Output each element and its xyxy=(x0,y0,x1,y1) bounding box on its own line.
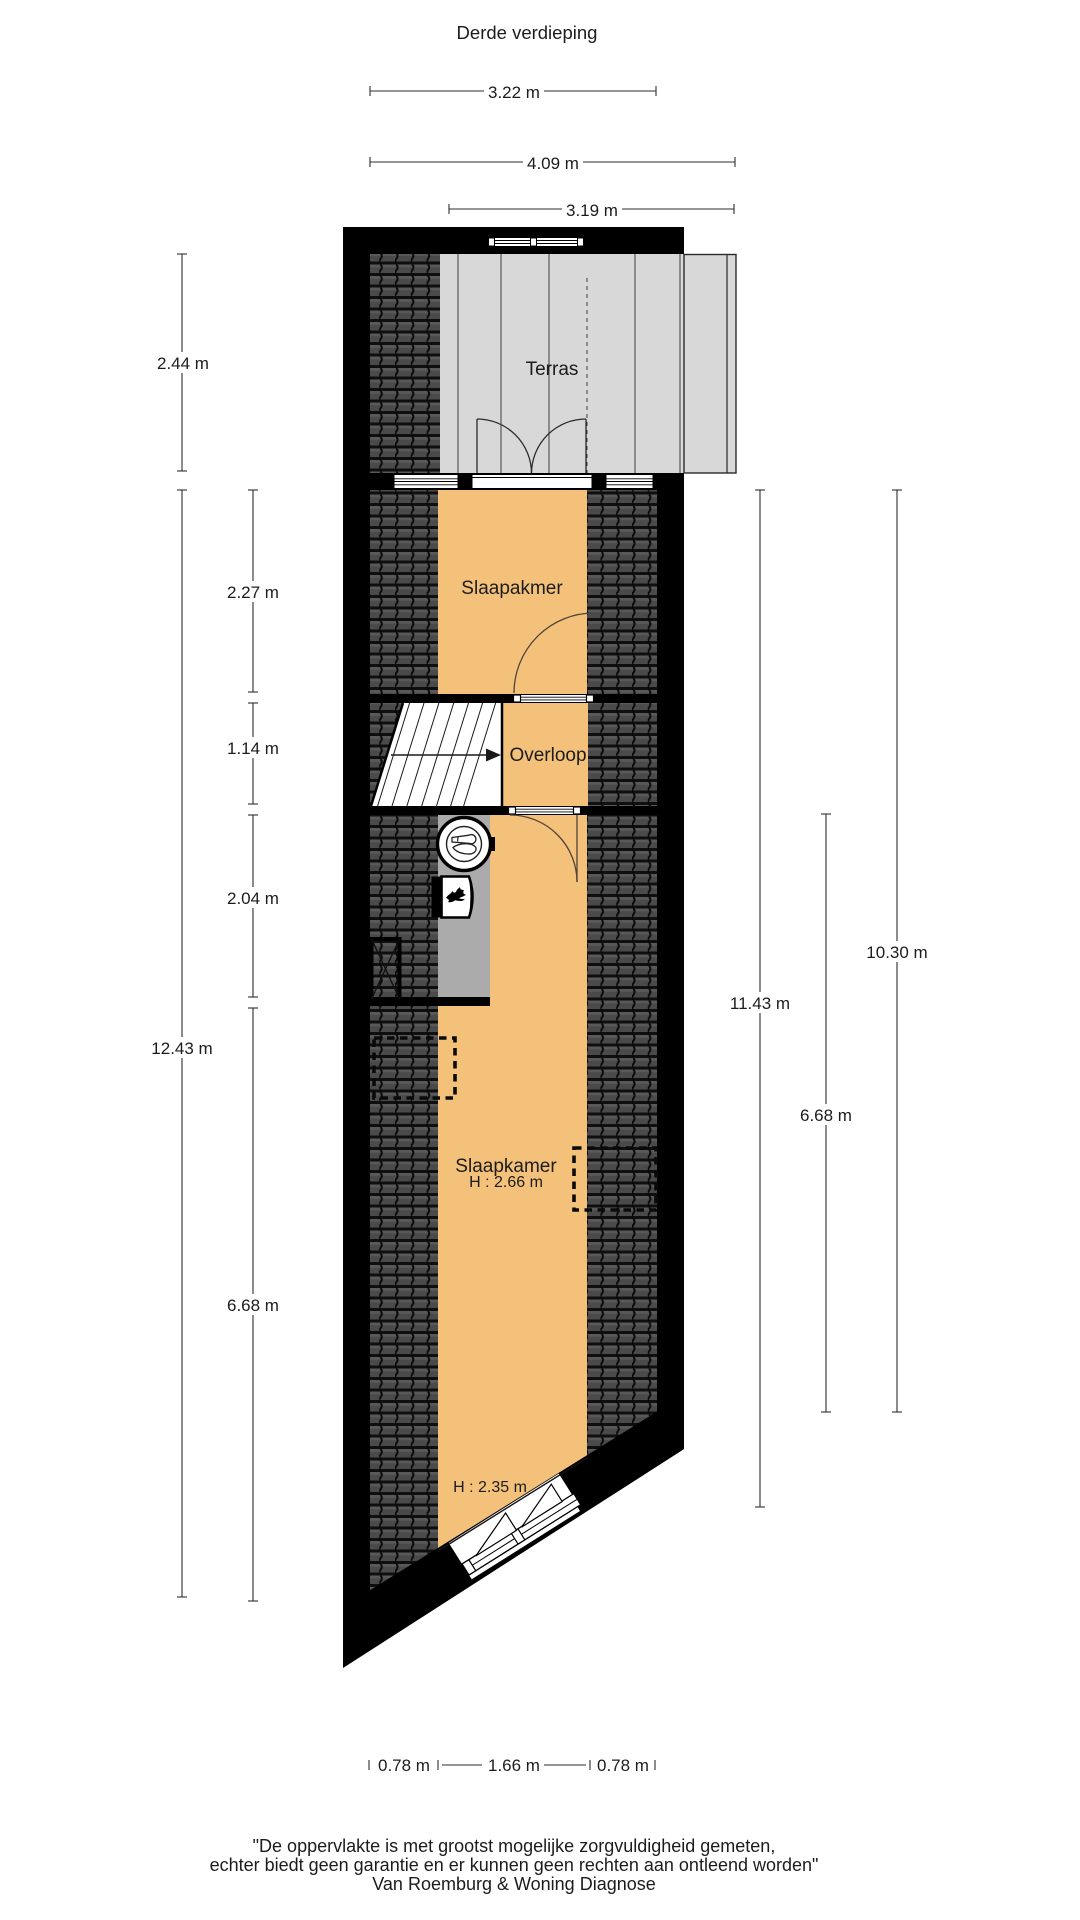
svg-text:"De oppervlakte is met grootst: "De oppervlakte is met grootst mogelijke… xyxy=(253,1836,776,1856)
svg-text:Van Roemburg & Woning Diagnose: Van Roemburg & Woning Diagnose xyxy=(372,1874,656,1894)
svg-text:H : 2.66 m: H : 2.66 m xyxy=(469,1174,543,1191)
svg-text:12.43 m: 12.43 m xyxy=(151,1039,212,1058)
svg-text:Terras: Terras xyxy=(526,359,579,380)
svg-text:3.19 m: 3.19 m xyxy=(566,201,618,220)
svg-text:H : 2.35 m: H : 2.35 m xyxy=(453,1479,527,1496)
svg-text:1.14 m: 1.14 m xyxy=(227,739,279,758)
svg-text:2.27 m: 2.27 m xyxy=(227,583,279,602)
svg-text:11.43 m: 11.43 m xyxy=(730,994,790,1013)
svg-text:10.30 m: 10.30 m xyxy=(866,943,927,962)
svg-text:Slaapakmer: Slaapakmer xyxy=(461,578,563,599)
svg-text:6.68 m: 6.68 m xyxy=(227,1296,279,1315)
svg-text:0.78 m: 0.78 m xyxy=(597,1756,649,1775)
svg-text:3.22 m: 3.22 m xyxy=(488,83,540,102)
svg-text:echter biedt geen garantie en: echter biedt geen garantie en er kunnen … xyxy=(210,1855,819,1875)
svg-text:0.78 m: 0.78 m xyxy=(378,1756,430,1775)
svg-text:1.66 m: 1.66 m xyxy=(488,1756,540,1775)
svg-text:Derde verdieping: Derde verdieping xyxy=(457,22,598,43)
svg-text:Overloop: Overloop xyxy=(509,745,586,766)
svg-text:6.68 m: 6.68 m xyxy=(800,1106,852,1125)
svg-text:2.04 m: 2.04 m xyxy=(227,889,279,908)
svg-text:2.44 m: 2.44 m xyxy=(157,354,209,373)
svg-text:4.09 m: 4.09 m xyxy=(527,154,579,173)
